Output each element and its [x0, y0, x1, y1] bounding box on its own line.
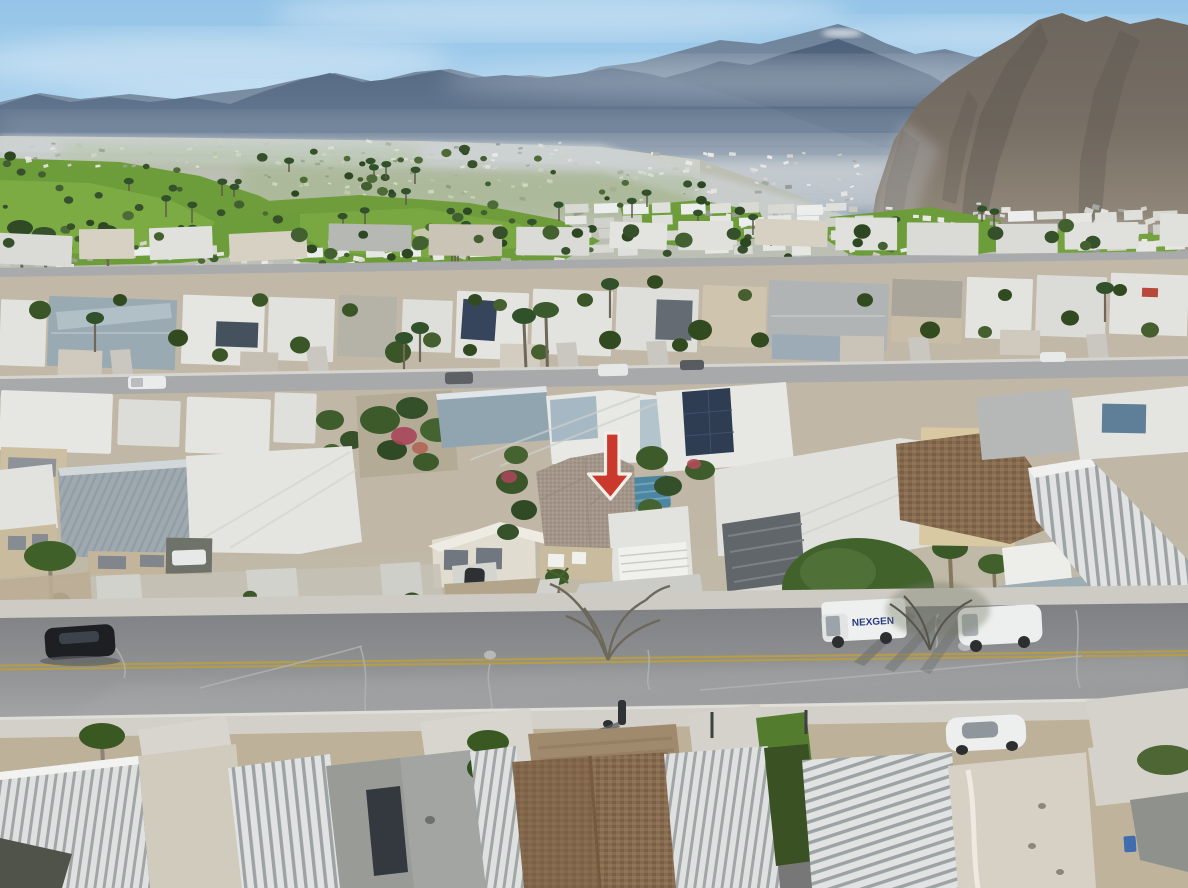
svg-text:NEXGEN: NEXGEN: [852, 616, 895, 629]
